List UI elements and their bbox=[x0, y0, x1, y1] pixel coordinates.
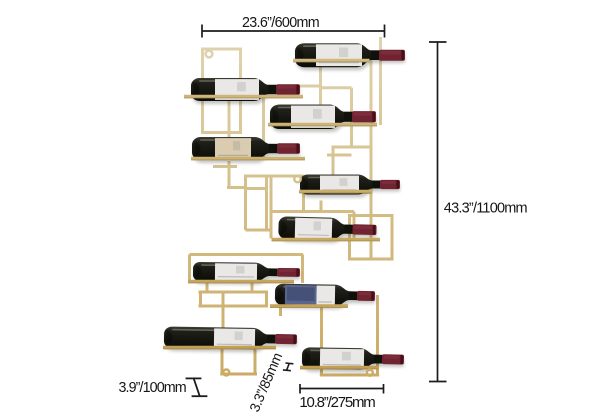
svg-text:43.3”/1100mm: 43.3”/1100mm bbox=[444, 201, 528, 217]
svg-text:23.6”/600mm: 23.6”/600mm bbox=[242, 15, 319, 31]
svg-text:3.9”/100mm: 3.9”/100mm bbox=[119, 380, 186, 396]
svg-text:10.8”/275mm: 10.8”/275mm bbox=[299, 394, 375, 411]
